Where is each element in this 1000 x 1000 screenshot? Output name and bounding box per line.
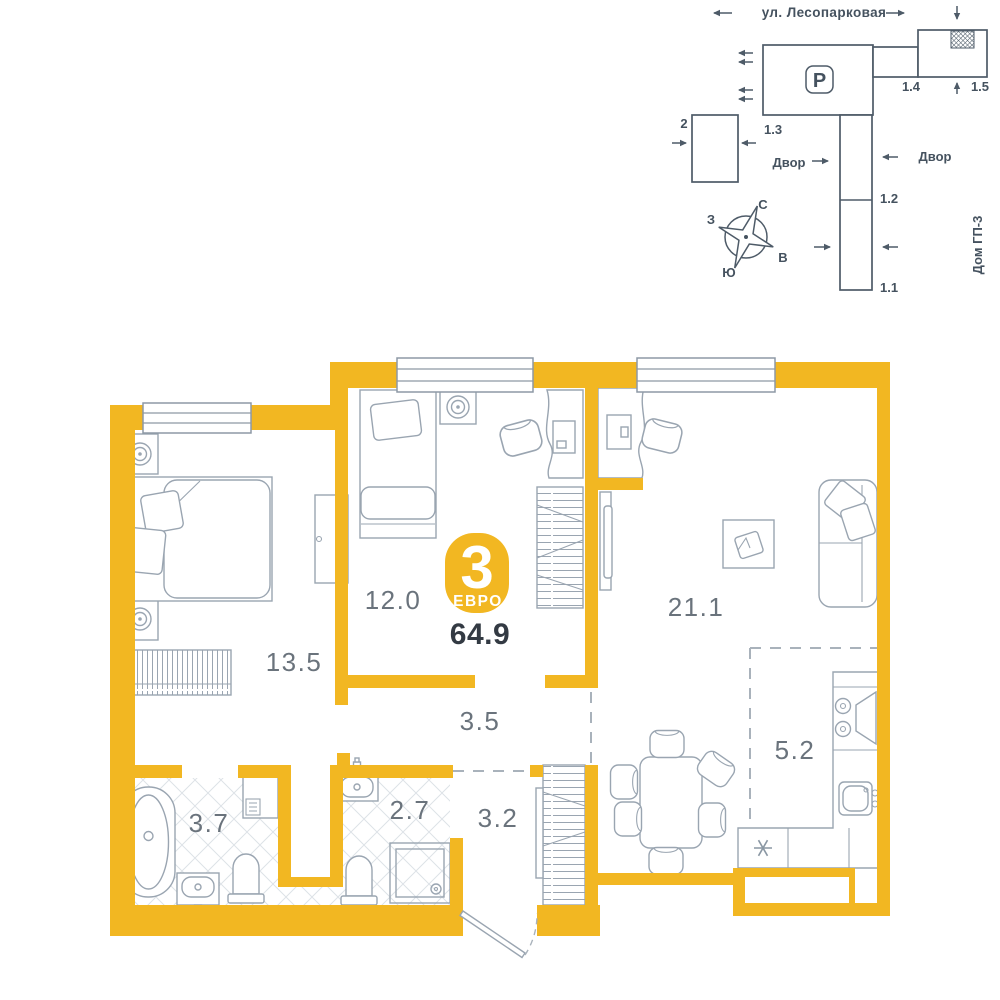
room-label-bathroom: 3.7 bbox=[189, 808, 230, 838]
total-area: 64.9 bbox=[450, 618, 510, 651]
block-1-3-label: 1.3 bbox=[764, 122, 782, 137]
tv-icon bbox=[604, 506, 612, 578]
street-label: ул. Лесопарковая bbox=[762, 5, 887, 20]
building-tower bbox=[840, 115, 872, 290]
wardrobe bbox=[537, 487, 583, 608]
kitchen-furniture bbox=[611, 672, 879, 875]
double-bed bbox=[118, 477, 272, 601]
window bbox=[143, 403, 251, 433]
entrance-door bbox=[460, 911, 537, 958]
yard-label-left: Двор bbox=[773, 155, 806, 170]
building-1-4 bbox=[873, 47, 918, 77]
window bbox=[397, 358, 533, 392]
parking-icon-label: P bbox=[813, 70, 826, 92]
desk-chair bbox=[498, 418, 544, 458]
room-label-living: 21.1 bbox=[668, 592, 725, 622]
block-2-label: 2 bbox=[680, 116, 687, 131]
apartment-badge: 3 ЕВРО 64.9 bbox=[445, 533, 510, 651]
block-1-5-label: 1.5 bbox=[971, 79, 989, 94]
room-label-bedroom1: 13.5 bbox=[266, 647, 323, 677]
dining-chair bbox=[650, 731, 684, 758]
dining-chair bbox=[611, 765, 638, 799]
compass-west: З bbox=[707, 212, 715, 227]
sofa bbox=[819, 479, 877, 607]
hall-furniture bbox=[536, 765, 585, 905]
dining-chair bbox=[699, 803, 726, 837]
window bbox=[637, 358, 775, 392]
door-swing-arc bbox=[525, 913, 537, 955]
door-leaf bbox=[460, 911, 525, 958]
stove-icon bbox=[836, 692, 877, 744]
living-furniture bbox=[598, 388, 877, 607]
building-1-5-hatch bbox=[951, 31, 974, 48]
yard-label-right: Двор bbox=[919, 149, 952, 164]
wardrobe bbox=[121, 650, 231, 695]
block-1-4-label: 1.4 bbox=[902, 79, 921, 94]
room-label-hall: 3.2 bbox=[478, 803, 519, 833]
room-label-kitchen: 5.2 bbox=[775, 735, 816, 765]
kitchen-counter bbox=[738, 672, 877, 868]
floor-plan: 13.5 12.0 3.5 21.1 5.2 3.7 2.7 3.2 3 ЕВР… bbox=[110, 358, 890, 958]
compass: С В Ю З bbox=[707, 196, 788, 280]
compass-south: Ю bbox=[722, 265, 735, 280]
room-label-wc: 2.7 bbox=[390, 795, 431, 825]
building-2 bbox=[692, 115, 738, 182]
desk-chair bbox=[640, 417, 683, 455]
block-1-2-label: 1.2 bbox=[880, 191, 898, 206]
wardrobe-door-track bbox=[536, 788, 543, 878]
dining-chair bbox=[615, 802, 642, 836]
single-bed bbox=[360, 390, 436, 538]
floorplan-page: ул. Лесопарковая P 1.3 1.4 1.5 1.2 1.1 2… bbox=[0, 0, 1000, 1000]
badge-rooms-count: 3 bbox=[460, 534, 493, 601]
compass-center bbox=[744, 235, 748, 239]
hall-wardrobe bbox=[543, 765, 585, 905]
tiles-under-shaft bbox=[278, 887, 343, 905]
house-gp3-label: Дом ГП-3 bbox=[970, 216, 985, 275]
badge-type: ЕВРО bbox=[453, 593, 503, 610]
dining-chair bbox=[649, 848, 683, 875]
coffee-table bbox=[723, 520, 774, 568]
block-1-1-label: 1.1 bbox=[880, 280, 898, 295]
kitchen-sink-icon bbox=[839, 782, 878, 815]
room-label-corridor: 3.5 bbox=[460, 706, 501, 736]
site-plan: ул. Лесопарковая P 1.3 1.4 1.5 1.2 1.1 2… bbox=[672, 5, 989, 295]
desk bbox=[547, 390, 583, 478]
dining-table bbox=[640, 757, 702, 848]
compass-north: С bbox=[758, 197, 768, 212]
fridge-icon bbox=[754, 840, 772, 856]
compass-east: В bbox=[778, 250, 787, 265]
room-label-bedroom2: 12.0 bbox=[365, 585, 422, 615]
